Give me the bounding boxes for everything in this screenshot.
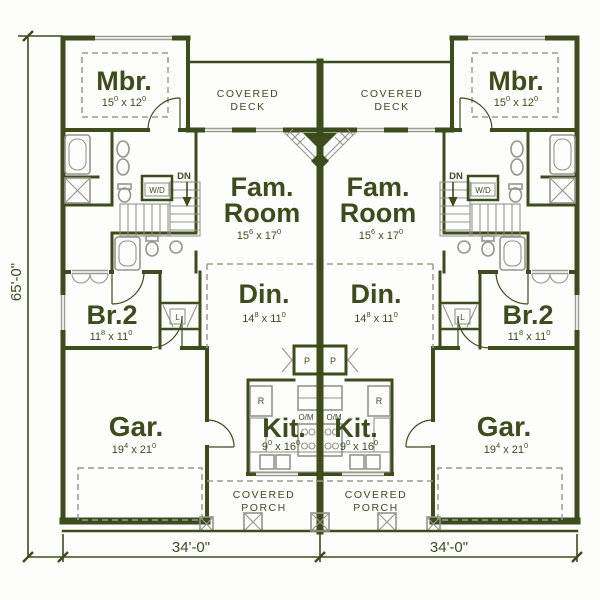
dn-label-right: DN	[449, 171, 463, 182]
br2-label-right: Br.2	[502, 300, 553, 330]
deck-label-right-2: DECK	[374, 101, 409, 113]
fireplace	[284, 129, 356, 170]
oven-micro-label-left: O/M	[298, 413, 313, 422]
dim-bottom-right: 34'-0"	[430, 539, 468, 556]
fam-dim-left: 156 x 170	[237, 227, 281, 242]
mbr-label-right: Mbr.	[488, 66, 544, 96]
dimension-lines	[18, 31, 582, 562]
oven-micro-label-right: O/M	[326, 413, 341, 422]
mbr-label-left: Mbr.	[96, 66, 152, 96]
kit-dim-left: 90 x 160	[262, 438, 300, 453]
din-label-left: Din.	[239, 279, 290, 309]
deck-label-left-1: COVERED	[217, 88, 279, 100]
gar-dim-left: 194 x 210	[112, 441, 156, 456]
dim-bottom-left: 34'-0"	[172, 539, 210, 556]
porch-label-right-2: PORCH	[353, 502, 398, 514]
fridge-label-right: R	[376, 396, 383, 406]
wd-label-right: W/D	[475, 186, 491, 195]
deck-label-left-2: DECK	[230, 101, 265, 113]
dn-label-left: DN	[177, 171, 191, 182]
fridge-label-left: R	[258, 396, 265, 406]
br2-label-left: Br.2	[86, 300, 137, 330]
floor-plan-page: 65'-0" 34'-0" 34'-0" Mbr. 150 x 120 COVE…	[0, 0, 600, 600]
din-dim-left: 148 x 110	[242, 310, 286, 325]
mbr-dim-left: 150 x 120	[102, 94, 146, 109]
dim-left-total: 65'-0"	[8, 263, 25, 301]
pantry-label-left: P	[304, 356, 310, 366]
wd-label-left: W/D	[149, 186, 165, 195]
br2-dim-right: 118 x 110	[508, 328, 551, 343]
gar-label-left: Gar.	[109, 411, 163, 442]
kit-dim-right: 90 x 160	[340, 438, 378, 453]
linen-label-right: L	[460, 313, 465, 322]
gar-label-right: Gar.	[477, 411, 531, 442]
porch-label-left-1: COVERED	[233, 489, 295, 501]
br2-dim-left: 118 x 110	[90, 328, 133, 343]
fam-label-left-2: Room	[224, 198, 301, 228]
linen-label-left: L	[175, 313, 180, 322]
mbr-dim-right: 150 x 120	[494, 94, 538, 109]
floor-plan-drawing: 65'-0" 34'-0" 34'-0" Mbr. 150 x 120 COVE…	[0, 0, 600, 600]
gar-dim-right: 194 x 210	[484, 441, 528, 456]
porch-label-left-2: PORCH	[241, 502, 286, 514]
deck-label-right-1: COVERED	[361, 88, 423, 100]
porch-label-right-1: COVERED	[345, 489, 407, 501]
fam-label-right-2: Room	[340, 198, 417, 228]
fam-dim-right: 156 x 170	[359, 227, 403, 242]
pantry-label-right: P	[330, 356, 336, 366]
din-dim-right: 148 x 110	[354, 310, 398, 325]
din-label-right: Din.	[351, 279, 402, 309]
